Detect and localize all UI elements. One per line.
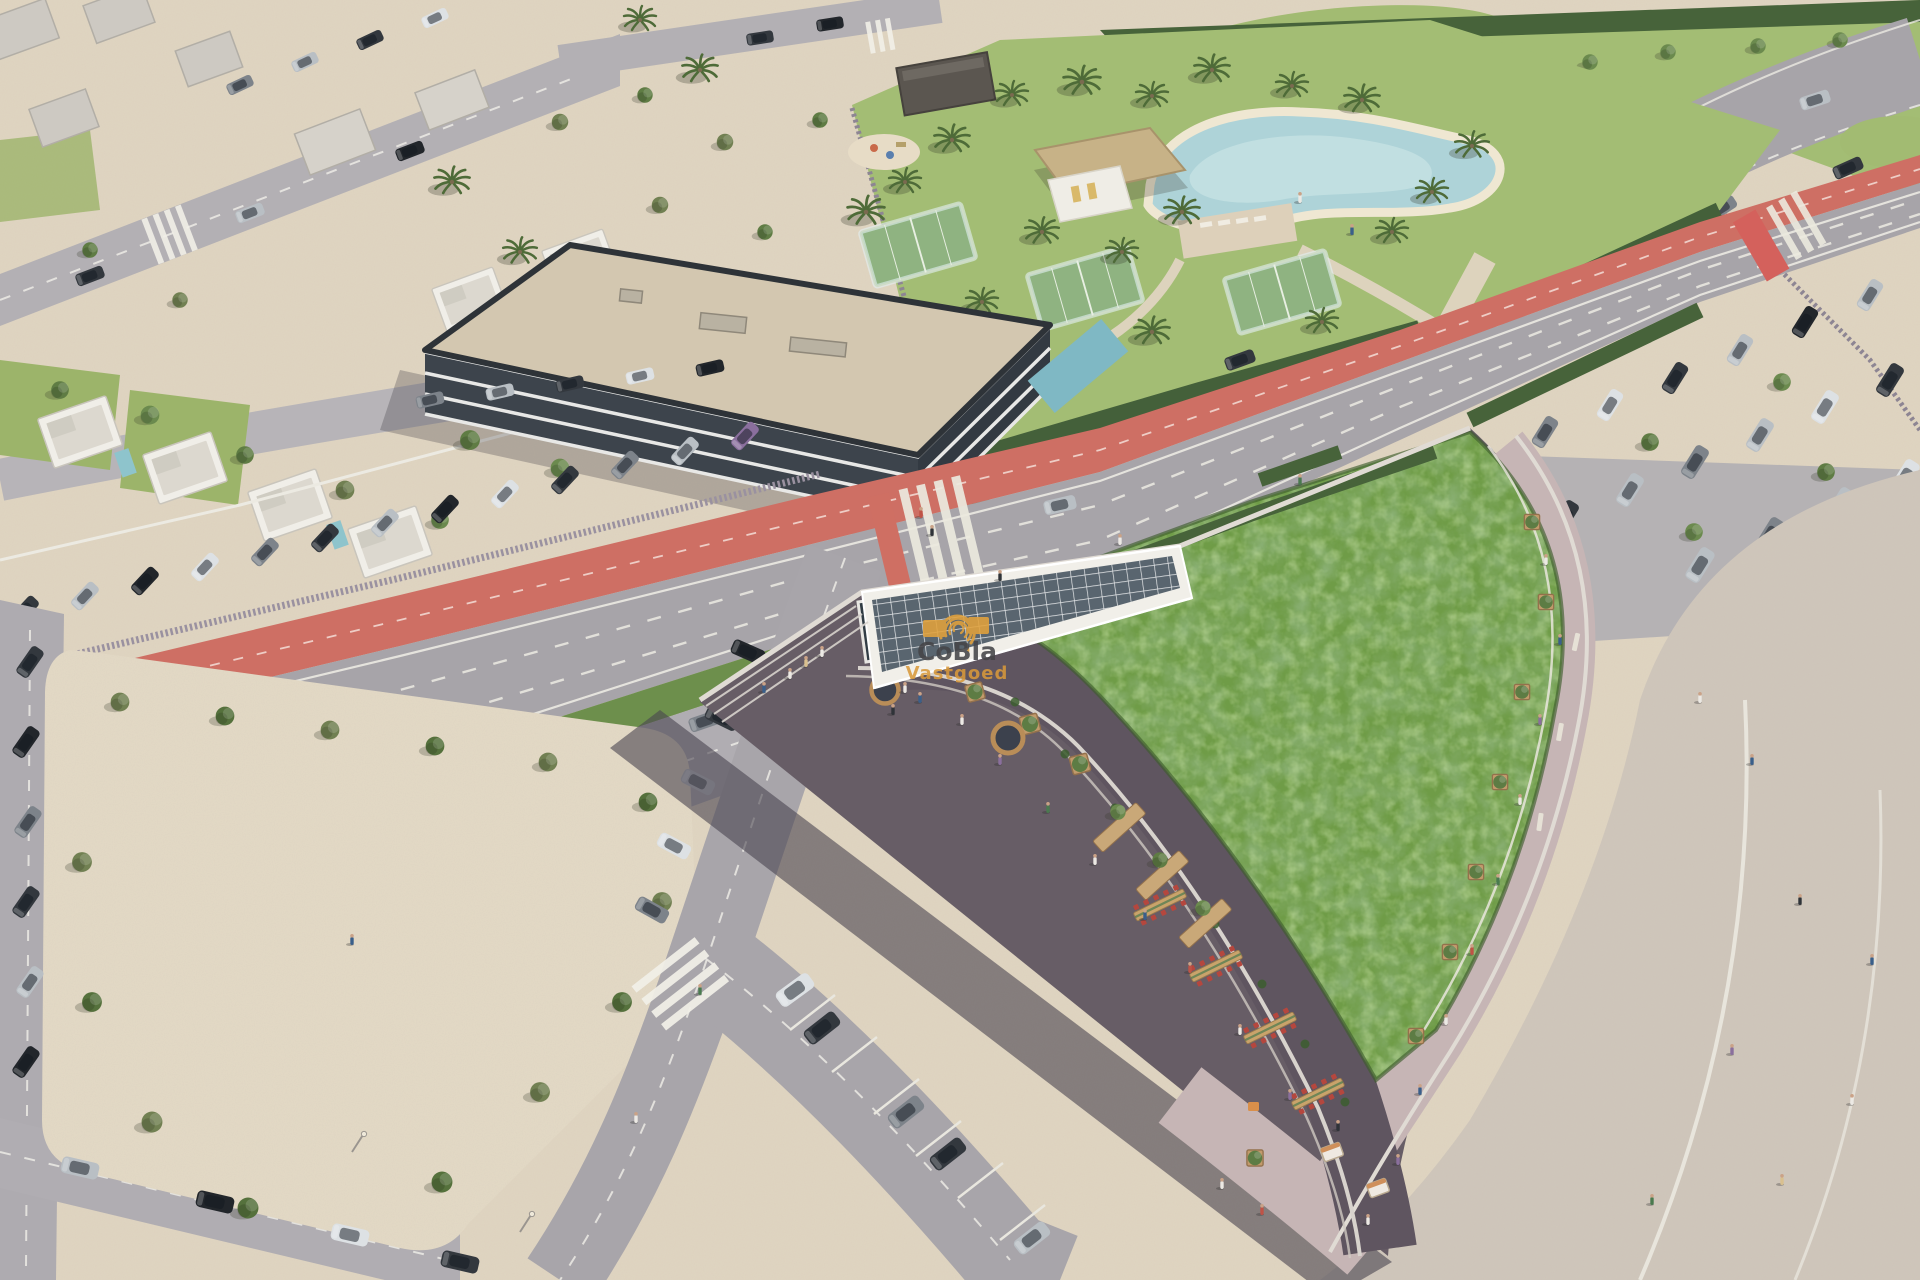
aerial-render-image: CoBla Vastgoed: [0, 0, 1920, 1280]
playground: [848, 134, 920, 170]
watermark-brand-text: CoBla: [917, 637, 997, 666]
scene-canvas: CoBla Vastgoed: [0, 0, 1920, 1280]
food-cart: [1248, 1102, 1259, 1111]
watermark-tagline-text: Vastgoed: [906, 663, 1009, 684]
seating-pod: [993, 723, 1023, 753]
